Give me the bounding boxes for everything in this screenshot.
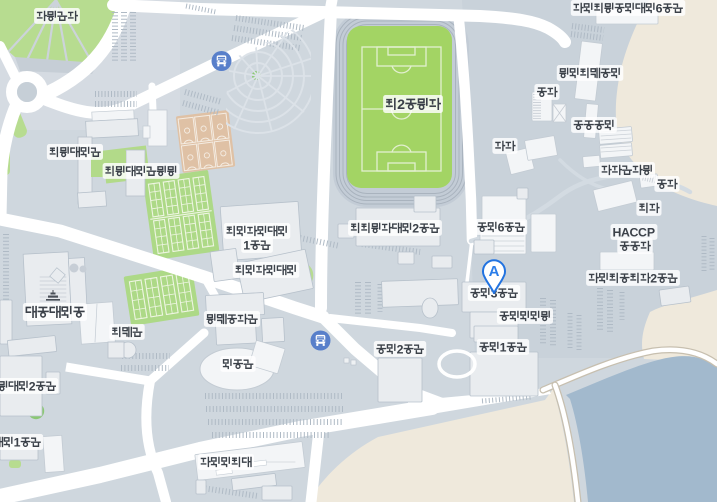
svg-text:1: 1 [500, 340, 507, 354]
svg-text:2: 2 [650, 271, 657, 285]
svg-text:1: 1 [243, 238, 250, 252]
svg-text:A: A [489, 263, 500, 280]
svg-text:2: 2 [397, 342, 404, 356]
svg-text:2: 2 [412, 221, 419, 235]
svg-text:6: 6 [656, 1, 663, 15]
svg-text:1: 1 [14, 435, 21, 449]
svg-text:2: 2 [29, 379, 36, 393]
svg-text:2: 2 [397, 97, 405, 113]
svg-text:C: C [638, 225, 647, 239]
svg-text:P: P [647, 225, 655, 239]
svg-text:6: 6 [498, 220, 505, 234]
